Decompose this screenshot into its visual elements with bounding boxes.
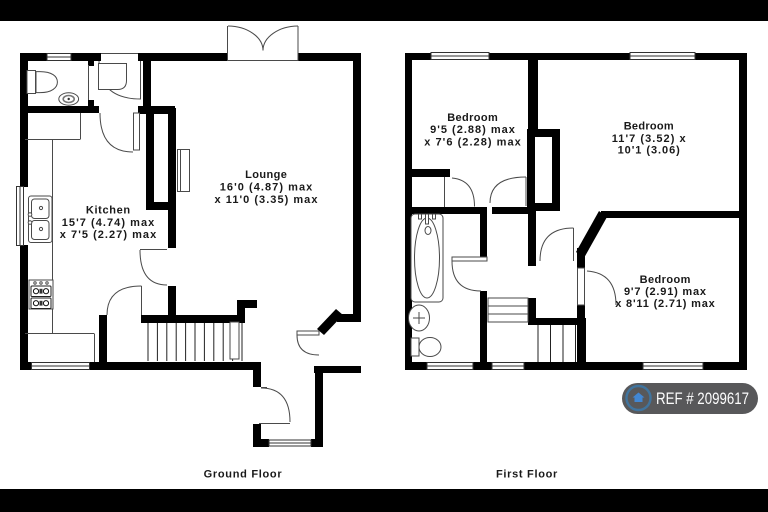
svg-text:x 7'5 (2.27) max: x 7'5 (2.27) max <box>60 229 157 241</box>
svg-text:Bedroom: Bedroom <box>640 274 691 286</box>
svg-text:11'7 (3.52) x: 11'7 (3.52) x <box>612 133 687 145</box>
svg-text:Kitchen: Kitchen <box>86 205 130 217</box>
svg-text:9'7 (2.91) max: 9'7 (2.91) max <box>624 286 707 298</box>
svg-text:Bedroom: Bedroom <box>447 112 498 124</box>
svg-text:x 11'0 (3.35) max: x 11'0 (3.35) max <box>215 194 319 206</box>
svg-text:15'7 (4.74) max: 15'7 (4.74) max <box>62 217 155 229</box>
svg-text:REF # 2099617: REF # 2099617 <box>656 389 749 408</box>
svg-text:9'5 (2.88) max: 9'5 (2.88) max <box>430 124 516 136</box>
svg-text:Lounge: Lounge <box>245 169 287 181</box>
svg-text:First Floor: First Floor <box>496 469 558 481</box>
svg-text:Bedroom: Bedroom <box>624 121 674 133</box>
svg-text:x 7'6 (2.28) max: x 7'6 (2.28) max <box>424 137 521 149</box>
svg-text:x 8'11 (2.71) max: x 8'11 (2.71) max <box>615 298 715 310</box>
svg-text:16'0 (4.87) max: 16'0 (4.87) max <box>220 182 313 194</box>
svg-text:Ground Floor: Ground Floor <box>204 469 283 481</box>
svg-text:10'1 (3.06): 10'1 (3.06) <box>618 145 681 157</box>
